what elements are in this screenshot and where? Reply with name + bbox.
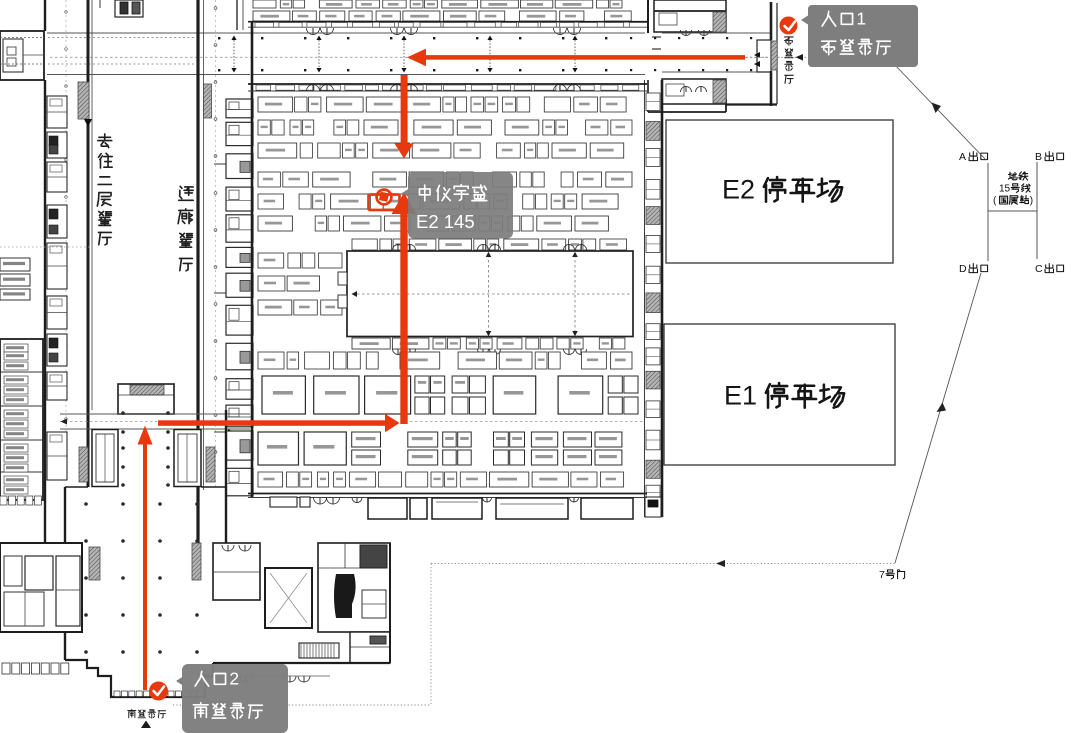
svg-text:2: 2 xyxy=(229,669,239,689)
svg-text:E2 145: E2 145 xyxy=(416,211,475,232)
svg-text:B: B xyxy=(1035,151,1042,163)
svg-text:A: A xyxy=(959,151,966,163)
svg-text:D: D xyxy=(959,263,967,275)
svg-text:C: C xyxy=(1035,263,1043,275)
svg-text:1: 1 xyxy=(856,9,866,29)
svg-text:15: 15 xyxy=(999,183,1011,194)
svg-text:): ) xyxy=(1030,195,1033,206)
svg-text:E2: E2 xyxy=(722,175,755,205)
svg-text:E1: E1 xyxy=(724,381,757,411)
svg-text:7: 7 xyxy=(879,569,885,581)
